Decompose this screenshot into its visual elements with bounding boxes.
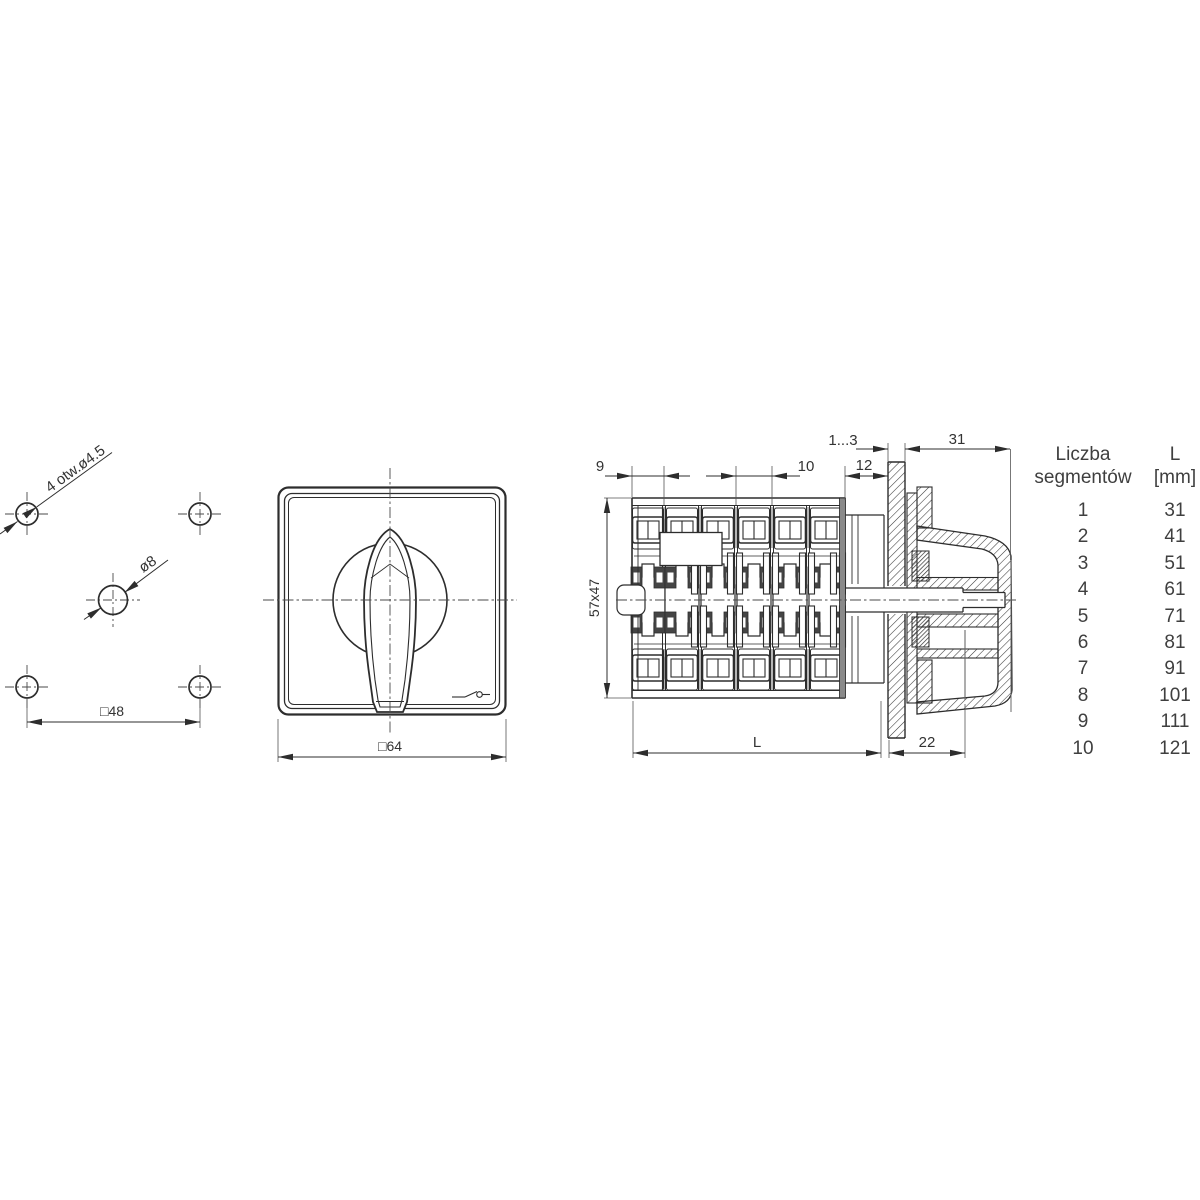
dim-behind-panel: 12: [845, 457, 888, 500]
table-row: 1 31: [1018, 498, 1200, 524]
table-row: 9 111: [1018, 709, 1200, 735]
svg-text:12: 12: [856, 457, 873, 474]
header-col1-line2: segmentów: [1018, 466, 1148, 489]
front-view-centerlines: [263, 468, 517, 733]
ratchet-detail: [912, 617, 929, 647]
segments-table-rows: 1 31 2 41 3 51 4 61 5 71 6 81 7 91 8 101: [1018, 498, 1200, 762]
cell-segments: 9: [1018, 709, 1148, 735]
header-col1-line1: Liczba: [1018, 443, 1148, 466]
mounting-hole-pattern-view: 4 otw.ø4.5 ø8 □48: [0, 442, 222, 728]
table-row: 3 51: [1018, 551, 1200, 577]
svg-text:10: 10: [798, 458, 815, 475]
center-hole-label: ø8: [136, 552, 160, 576]
header-col2-line2: [mm]: [1148, 466, 1200, 489]
cell-segments: 1: [1018, 498, 1148, 524]
side-view: 9 10 12 1...3: [586, 431, 1016, 758]
table-row: 6 81: [1018, 630, 1200, 656]
front-width-label: □64: [378, 738, 402, 754]
header-col2-line1: L: [1148, 443, 1200, 466]
cell-length: 41: [1148, 524, 1200, 550]
cell-length: 121: [1148, 736, 1200, 762]
table-row: 2 41: [1018, 524, 1200, 550]
table-row: 7 91: [1018, 656, 1200, 682]
segments-table-header-line2: segmentów [mm]: [1018, 466, 1200, 489]
svg-text:22: 22: [919, 734, 936, 751]
cell-segments: 3: [1018, 551, 1148, 577]
table-row: 10 121: [1018, 736, 1200, 762]
cell-segments: 5: [1018, 604, 1148, 630]
table-row: 5 71: [1018, 604, 1200, 630]
cell-segments: 10: [1018, 736, 1148, 762]
corner-holes-label: 4 otw.ø4.5: [42, 442, 108, 496]
cell-segments: 8: [1018, 683, 1148, 709]
cell-length: 31: [1148, 498, 1200, 524]
svg-text:9: 9: [596, 458, 604, 475]
rear-wall: [840, 498, 846, 698]
cell-length: 111: [1148, 709, 1200, 735]
table-row: 8 101: [1018, 683, 1200, 709]
segments-table: Liczba L segmentów [mm] 1 31 2 41 3 51 4…: [1018, 443, 1200, 762]
hole-centerlines: [5, 492, 222, 709]
svg-text:31: 31: [949, 431, 966, 448]
center-hole-callout: ø8: [84, 552, 168, 619]
ratchet-detail: [912, 551, 929, 581]
svg-text:L: L: [753, 734, 761, 751]
cell-length: 61: [1148, 577, 1200, 603]
cell-length: 51: [1148, 551, 1200, 577]
cell-length: 91: [1148, 656, 1200, 682]
label-plate: [660, 533, 722, 566]
corner-hole-callout: 4 otw.ø4.5: [0, 442, 112, 534]
hole-spacing-label: □48: [100, 703, 124, 719]
svg-text:57x47: 57x47: [586, 579, 602, 617]
svg-text:1...3: 1...3: [828, 432, 857, 449]
cell-length: 71: [1148, 604, 1200, 630]
cell-segments: 6: [1018, 630, 1148, 656]
cell-segments: 4: [1018, 577, 1148, 603]
front-width-dimension: □64: [278, 719, 506, 762]
cell-length: 81: [1148, 630, 1200, 656]
cell-segments: 2: [1018, 524, 1148, 550]
technical-drawing-page: 4 otw.ø4.5 ø8 □48: [0, 0, 1200, 1200]
cell-length: 101: [1148, 683, 1200, 709]
table-row: 4 61: [1018, 577, 1200, 603]
front-view: □64: [263, 468, 517, 762]
segments-table-header-line1: Liczba L: [1018, 443, 1200, 466]
cell-segments: 7: [1018, 656, 1148, 682]
dim-body-length: L: [633, 701, 881, 758]
hole-spacing-dimension: □48: [27, 700, 200, 728]
switch-symbol-icon: [452, 692, 490, 698]
